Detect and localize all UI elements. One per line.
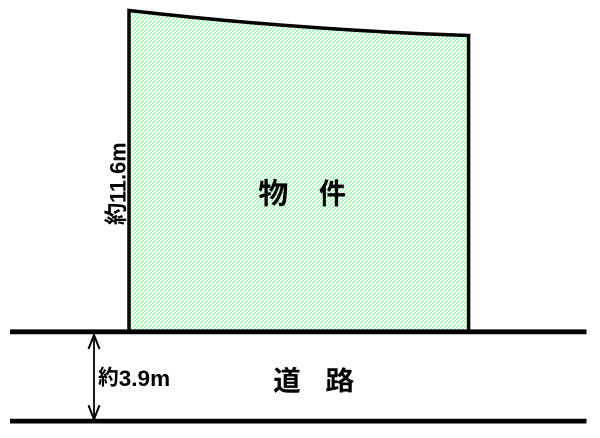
svg-text:11.6m: 11.6m — [105, 142, 130, 203]
svg-text:3.9m: 3.9m — [119, 366, 170, 391]
